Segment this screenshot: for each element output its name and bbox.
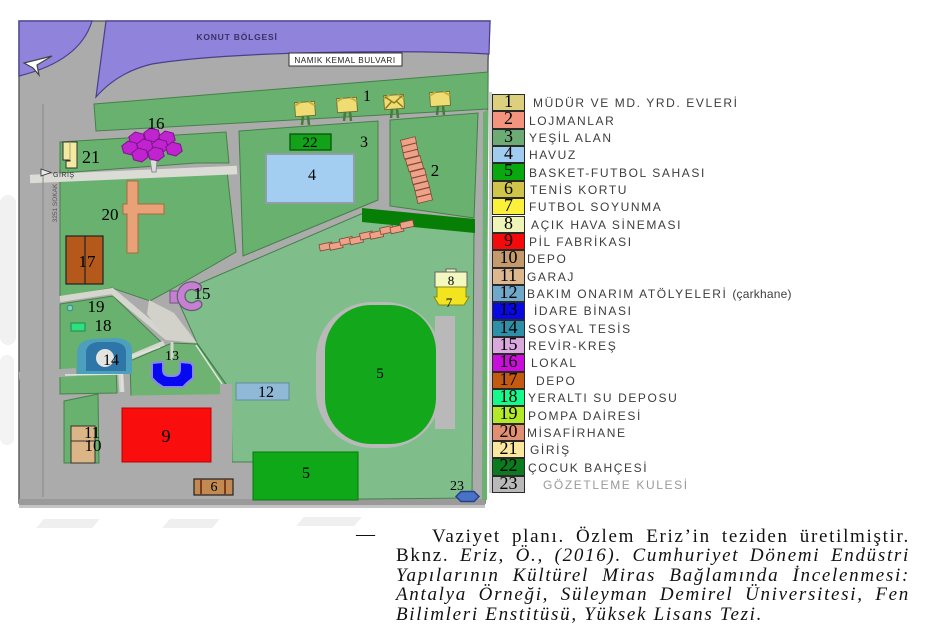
svg-text:4: 4 bbox=[308, 167, 316, 184]
svg-text:23: 23 bbox=[450, 479, 464, 494]
svg-text:16: 16 bbox=[148, 114, 165, 133]
svg-text:GİRİŞ: GİRİŞ bbox=[53, 170, 75, 179]
svg-text:8: 8 bbox=[448, 273, 455, 288]
svg-text:5: 5 bbox=[376, 366, 384, 382]
svg-text:22: 22 bbox=[303, 135, 318, 151]
svg-text:5: 5 bbox=[302, 465, 310, 482]
svg-text:7: 7 bbox=[446, 295, 453, 310]
svg-text:14: 14 bbox=[103, 352, 119, 369]
svg-text:17: 17 bbox=[79, 252, 97, 271]
svg-text:11: 11 bbox=[84, 423, 100, 442]
svg-text:3251 SOKAK: 3251 SOKAK bbox=[52, 183, 59, 222]
svg-text:19: 19 bbox=[88, 297, 105, 316]
svg-text:2: 2 bbox=[431, 161, 440, 180]
svg-text:20: 20 bbox=[102, 205, 119, 224]
svg-text:1: 1 bbox=[363, 88, 371, 105]
svg-text:15: 15 bbox=[194, 284, 211, 303]
svg-text:NAMIK KEMAL BULVARI: NAMIK KEMAL BULVARI bbox=[294, 56, 395, 65]
svg-text:6: 6 bbox=[211, 480, 218, 495]
svg-text:KONUT BÖLGESİ: KONUT BÖLGESİ bbox=[196, 32, 277, 42]
svg-text:18: 18 bbox=[95, 316, 112, 335]
svg-text:13: 13 bbox=[165, 349, 179, 364]
svg-text:12: 12 bbox=[258, 384, 274, 401]
svg-text:9: 9 bbox=[162, 426, 171, 446]
svg-text:3: 3 bbox=[360, 134, 368, 151]
svg-text:21: 21 bbox=[82, 147, 100, 167]
